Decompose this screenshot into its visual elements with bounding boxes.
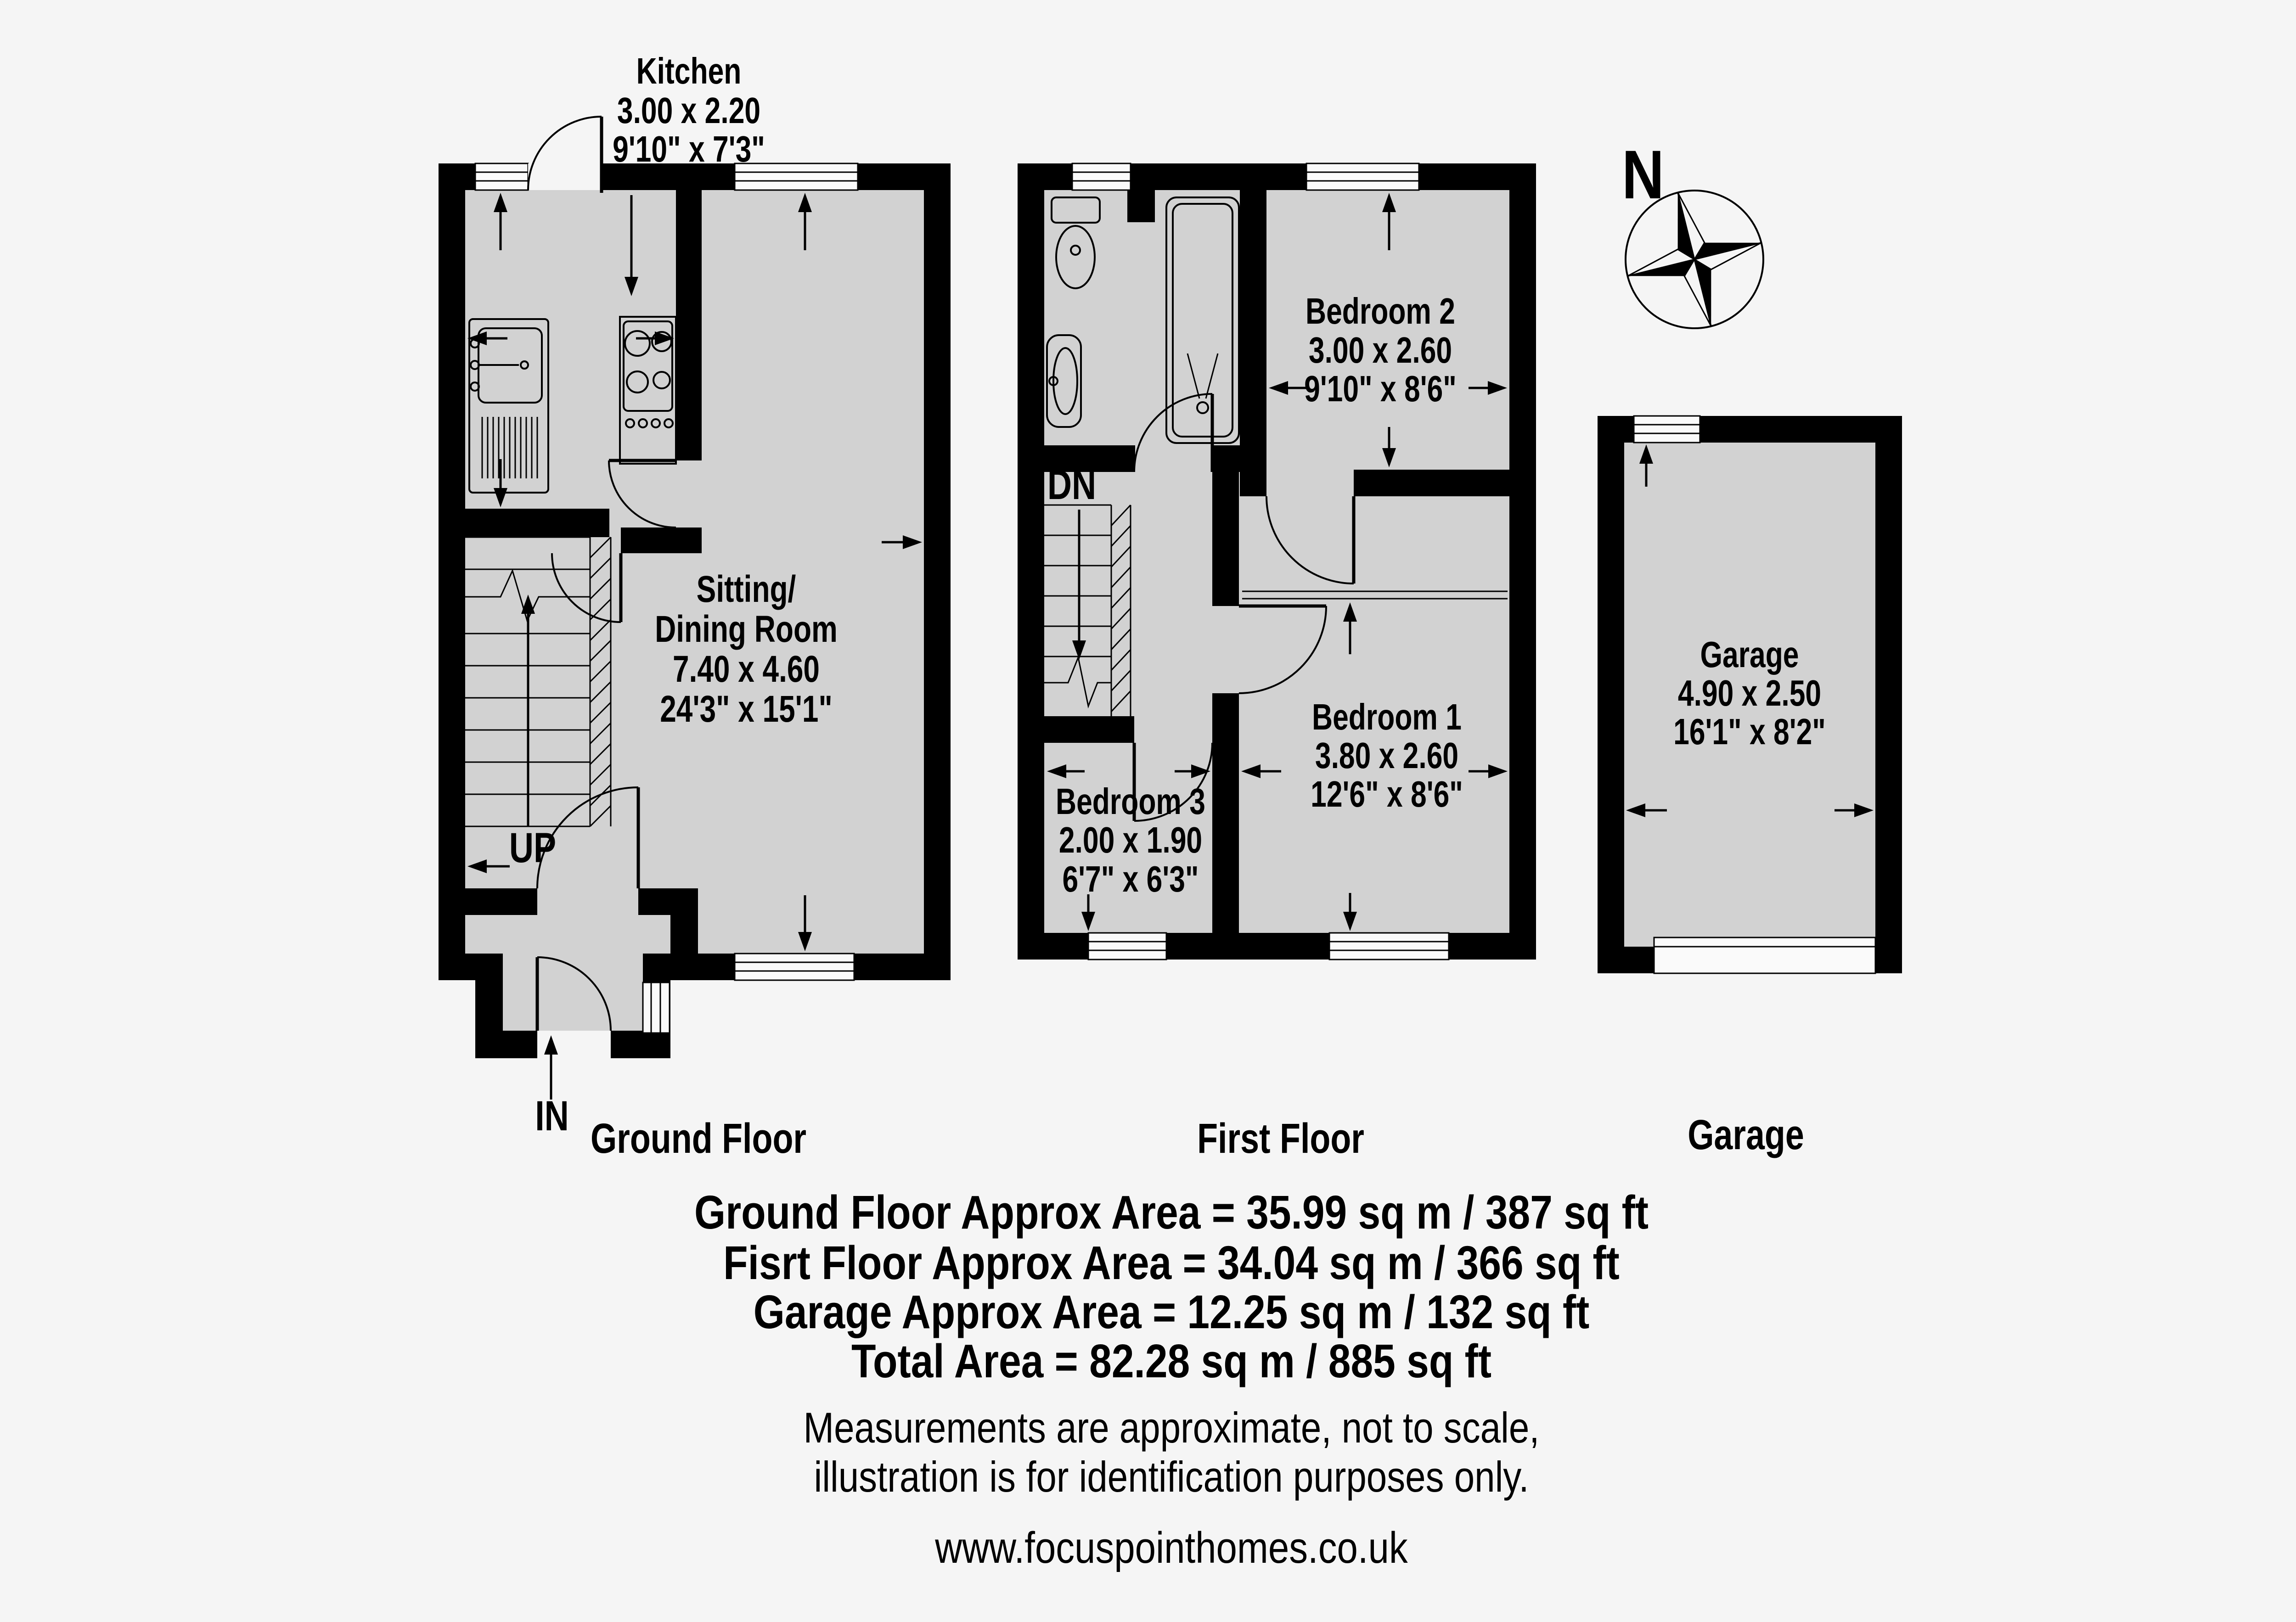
- garage-caption: Garage: [1688, 1111, 1804, 1158]
- bedroom2-label: Bedroom 2 3.00 x 2.60 9'10" x 8'6": [1304, 291, 1457, 410]
- ff-bed2-wall-right: [1354, 470, 1509, 496]
- garage-door: [1654, 937, 1875, 973]
- gf-lobby-wall-vertical: [670, 888, 698, 980]
- gf-kitchen-door-gap: [528, 163, 602, 190]
- ff-bed3-top-wall: [1018, 716, 1134, 743]
- gf-kitchen-bottom-wall: [439, 509, 609, 537]
- gf-lobby-wall-left: [439, 888, 537, 915]
- first-floor-caption: First Floor: [1197, 1115, 1364, 1162]
- ff-bed1-wall-lower: [1212, 693, 1239, 933]
- dn-label: DN: [1047, 461, 1096, 508]
- area-summary-line-4: Total Area = 82.28 sq m / 885 sq ft: [851, 1335, 1491, 1387]
- ground-floor-caption: Ground Floor: [591, 1115, 806, 1162]
- ff-bathroom-bottom-wall-right: [1212, 445, 1266, 472]
- compass-north-label: N: [1622, 136, 1664, 213]
- ff-bedroom3-window: [1088, 933, 1166, 960]
- garage-name: Garage: [1700, 634, 1799, 675]
- bedroom2-name: Bedroom 2: [1306, 291, 1455, 332]
- bedroom1-size-metric: 3.80 x 2.60: [1315, 735, 1458, 776]
- in-label: IN: [535, 1092, 569, 1139]
- garage-window: [1634, 416, 1700, 443]
- gf-kitchen-divider-wall: [676, 190, 702, 460]
- kitchen-name: Kitchen: [636, 51, 742, 92]
- ff-bath-bed2-divider: [1240, 190, 1266, 470]
- bedroom2-size-metric: 3.00 x 2.60: [1309, 330, 1452, 371]
- gf-porch-interior: [503, 954, 643, 1031]
- bedroom1-label: Bedroom 1 3.80 x 2.60 12'6" x 8'6": [1311, 697, 1463, 815]
- sitting-name-1: Sitting/: [697, 567, 796, 610]
- gf-hall-wall: [621, 528, 702, 553]
- up-label: UP: [509, 824, 556, 871]
- gf-porch-window: [643, 982, 670, 1033]
- area-summary-line-1: Ground Floor Approx Area = 35.99 sq m / …: [694, 1186, 1649, 1239]
- ff-bed1-wall-upper: [1212, 472, 1239, 606]
- bedroom1-size-imperial: 12'6" x 8'6": [1311, 774, 1463, 815]
- kitchen-size-metric: 3.00 x 2.20: [617, 90, 760, 131]
- disclaimer-line-1: Measurements are approximate, not to sca…: [804, 1404, 1540, 1452]
- bedroom3-size-imperial: 6'7" x 6'3": [1062, 859, 1199, 900]
- floorplan-canvas: UP IN Kitchen 3.00 x 2.20 9'10" x 7'3" S…: [0, 0, 2296, 1622]
- area-summary-line-2: Fisrt Floor Approx Area = 34.04 sq m / 3…: [723, 1236, 1620, 1289]
- sitting-size-imperial: 24'3" x 15'1": [660, 687, 833, 730]
- sitting-size-metric: 7.40 x 4.60: [673, 647, 820, 690]
- bedroom3-label: Bedroom 3 2.00 x 1.90 6'7" x 6'3": [1056, 781, 1205, 900]
- disclaimer-line-2: illustration is for identification purpo…: [814, 1453, 1529, 1501]
- ff-bathroom-window: [1072, 163, 1131, 190]
- bedroom3-size-metric: 2.00 x 1.90: [1059, 820, 1202, 861]
- sitting-name-2: Dining Room: [655, 607, 838, 650]
- website-url: www.focuspointhomes.co.uk: [934, 1523, 1408, 1572]
- garage-size-metric: 4.90 x 2.50: [1678, 673, 1821, 714]
- ff-bedroom2-window: [1306, 163, 1419, 190]
- bedroom1-name: Bedroom 1: [1312, 697, 1462, 738]
- ground-floor-plan: UP IN Kitchen 3.00 x 2.20 9'10" x 7'3" S…: [439, 51, 951, 1139]
- garage-size-imperial: 16'1" x 8'2": [1673, 712, 1826, 752]
- kitchen-size-imperial: 9'10" x 7'3": [613, 129, 765, 170]
- garage-plan: Garage 4.90 x 2.50 16'1" x 8'2": [1598, 416, 1902, 973]
- bedroom2-size-imperial: 9'10" x 8'6": [1304, 369, 1457, 410]
- area-summary-line-3: Garage Approx Area = 12.25 sq m / 132 sq…: [754, 1285, 1590, 1338]
- gf-sitting-window-bottom: [735, 954, 854, 980]
- first-floor-plan: DN Bedroom 2 3.00 x 2.60 9'10" x 8'6" Be…: [1018, 163, 1536, 960]
- ff-bed2-wall-left: [1240, 470, 1266, 496]
- bedroom3-name: Bedroom 3: [1056, 781, 1205, 822]
- gf-kitchen-window: [475, 163, 528, 190]
- ff-bathroom-stub: [1127, 190, 1155, 222]
- ff-bedroom1-window: [1329, 933, 1449, 960]
